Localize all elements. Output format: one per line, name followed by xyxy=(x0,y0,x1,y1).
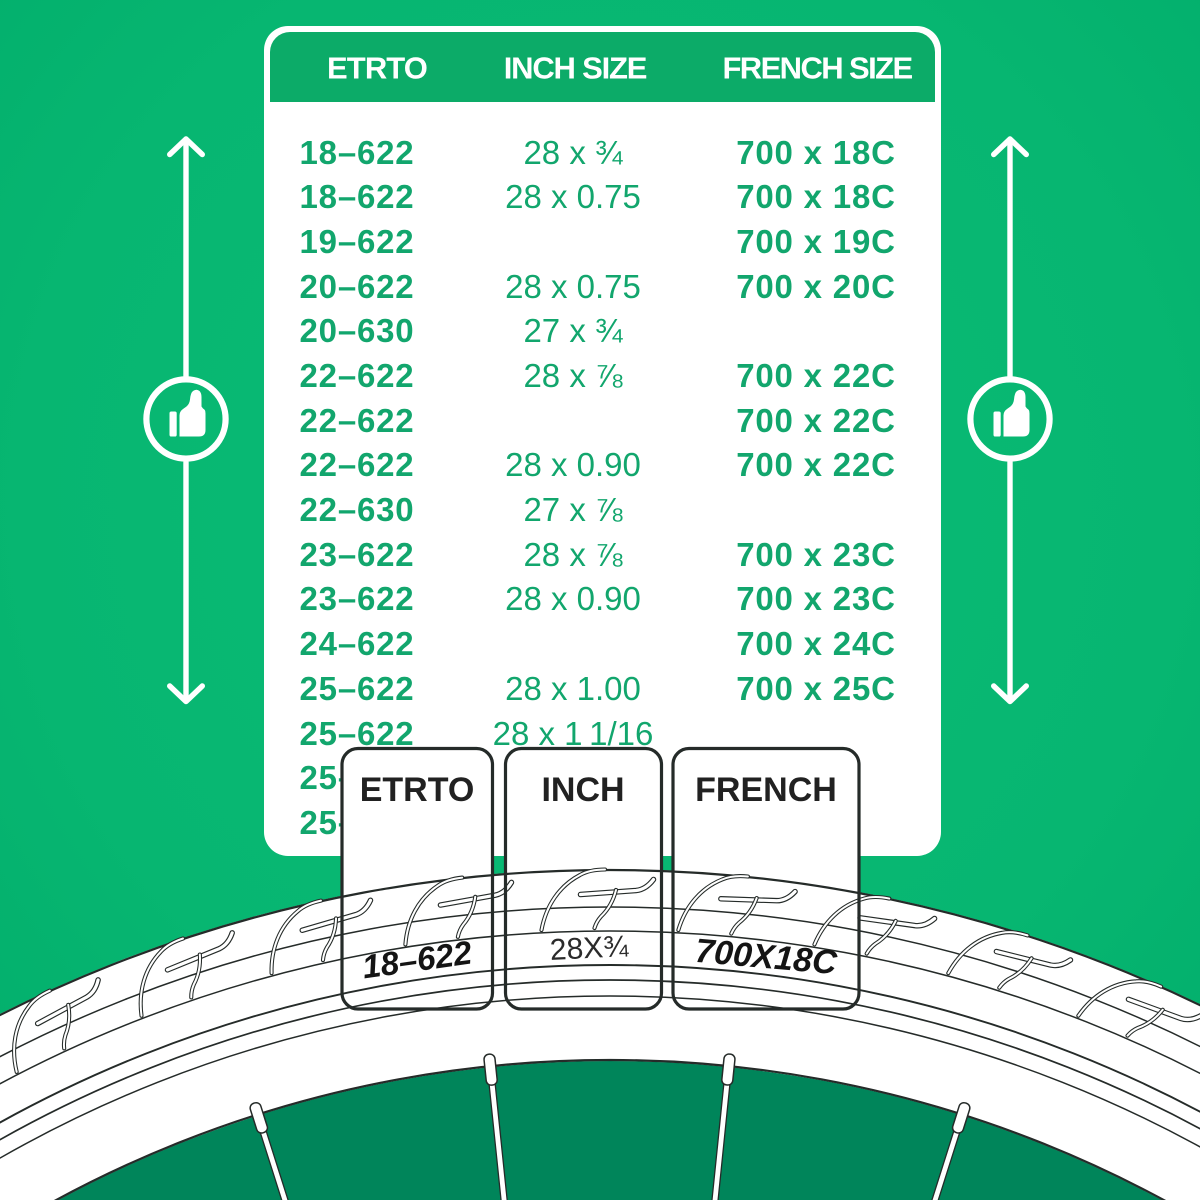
svg-text:22–622: 22–622 xyxy=(300,357,415,394)
svg-text:28 x 0.90: 28 x 0.90 xyxy=(505,580,641,617)
svg-text:24–622: 24–622 xyxy=(300,625,415,662)
svg-text:700 x 19C: 700 x 19C xyxy=(736,223,896,260)
svg-text:22–630: 22–630 xyxy=(300,491,415,528)
svg-text:700 x 22C: 700 x 22C xyxy=(736,357,896,394)
svg-text:19–622: 19–622 xyxy=(300,223,415,260)
svg-text:700 x 18C: 700 x 18C xyxy=(736,178,896,215)
svg-text:700 x 22C: 700 x 22C xyxy=(736,402,896,439)
svg-text:28 x ⅞: 28 x ⅞ xyxy=(523,536,623,573)
svg-text:ETRTO: ETRTO xyxy=(360,771,475,809)
svg-text:28 x 1.00: 28 x 1.00 xyxy=(505,670,641,707)
svg-text:INCH: INCH xyxy=(541,771,624,809)
svg-text:INCH SIZE: INCH SIZE xyxy=(504,51,647,86)
svg-text:20–630: 20–630 xyxy=(300,312,415,349)
svg-text:700 x 25C: 700 x 25C xyxy=(736,670,896,707)
svg-text:18–622: 18–622 xyxy=(300,178,415,215)
svg-text:22–622: 22–622 xyxy=(300,402,415,439)
svg-text:700 x 18C: 700 x 18C xyxy=(736,134,896,171)
svg-text:28 x 0.75: 28 x 0.75 xyxy=(505,268,641,305)
svg-text:ETRTO: ETRTO xyxy=(327,51,427,86)
svg-text:25–622: 25–622 xyxy=(300,670,415,707)
svg-text:22–622: 22–622 xyxy=(300,446,415,483)
svg-text:23–622: 23–622 xyxy=(300,536,415,573)
svg-text:23–622: 23–622 xyxy=(300,580,415,617)
svg-text:18–622: 18–622 xyxy=(300,134,415,171)
svg-text:28 x ¾: 28 x ¾ xyxy=(523,134,623,171)
svg-text:700 x 22C: 700 x 22C xyxy=(736,446,896,483)
svg-text:28 x 0.90: 28 x 0.90 xyxy=(505,446,641,483)
svg-text:700 x 23C: 700 x 23C xyxy=(736,536,896,573)
svg-text:700 x 24C: 700 x 24C xyxy=(736,625,896,662)
svg-text:28 x ⅞: 28 x ⅞ xyxy=(523,357,623,394)
svg-text:700 x 20C: 700 x 20C xyxy=(736,268,896,305)
svg-text:28 x 1 1/16: 28 x 1 1/16 xyxy=(493,715,654,752)
svg-text:FRENCH: FRENCH xyxy=(695,771,837,809)
svg-text:25–622: 25–622 xyxy=(300,715,415,752)
svg-text:27 x ¾: 27 x ¾ xyxy=(523,312,623,349)
svg-text:28X¾: 28X¾ xyxy=(549,930,630,967)
svg-text:27 x ⅞: 27 x ⅞ xyxy=(523,491,623,528)
svg-text:700 x 23C: 700 x 23C xyxy=(736,580,896,617)
svg-text:FRENCH SIZE: FRENCH SIZE xyxy=(722,51,912,86)
svg-text:28 x 0.75: 28 x 0.75 xyxy=(505,178,641,215)
svg-text:20–622: 20–622 xyxy=(300,268,415,305)
